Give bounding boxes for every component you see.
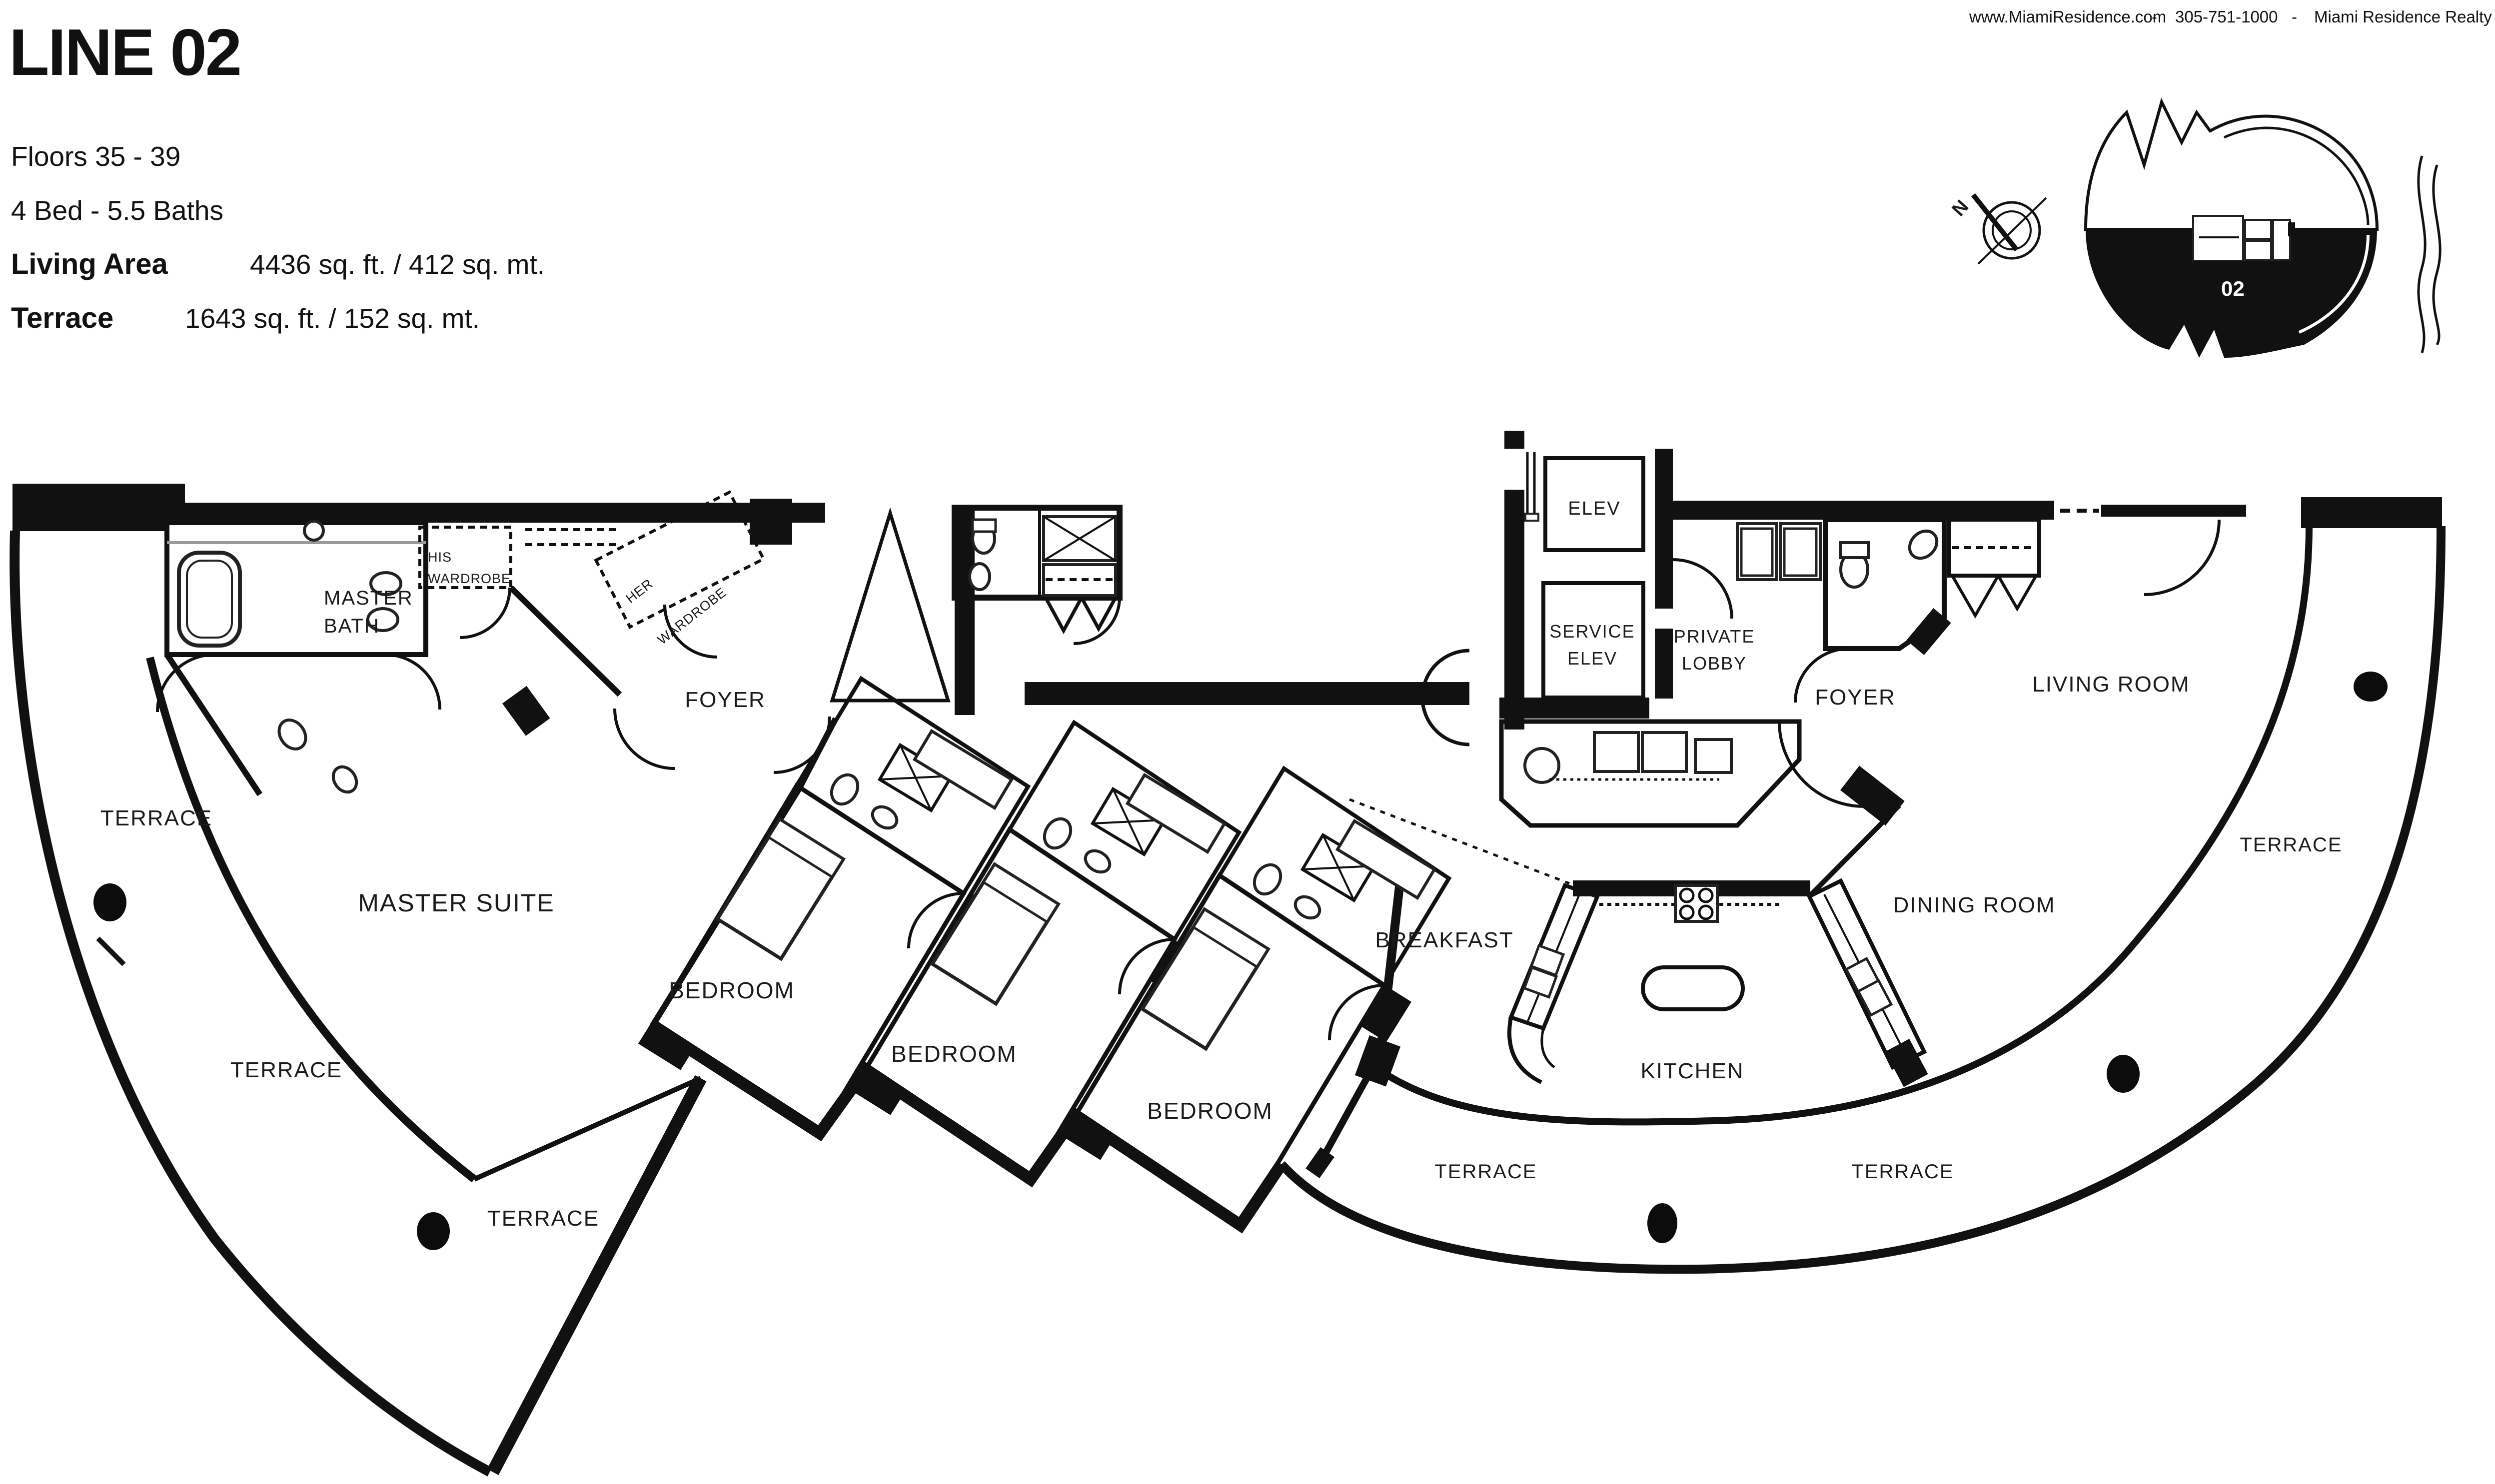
stove-icon <box>1675 885 1717 921</box>
website-link: www.MiamiResidence.com <box>1969 7 2166 26</box>
compass-icon: N <box>1948 195 2046 264</box>
living-area-label: Living Area <box>11 248 168 280</box>
structural-triangle <box>832 513 948 701</box>
label-private-lobby-1: PRIVATE <box>1674 626 1755 647</box>
header-block: LINE 02 Floors 35 - 39 4 Bed - 5.5 Baths… <box>9 15 545 334</box>
phone-number: 305-751-1000 <box>2175 7 2278 26</box>
label-bedroom-1: BEDROOM <box>669 977 795 1003</box>
shower-icon <box>1044 517 1116 561</box>
sink-icon <box>970 564 990 590</box>
label-foyer-left: FOYER <box>685 688 766 712</box>
terrace-area-label: Terrace <box>11 302 113 334</box>
label-terrace-bottom-left: TERRACE <box>1434 1161 1537 1183</box>
floorplan-sheet: www.MiamiResidence.com - 305-751-1000 - … <box>0 0 2495 1484</box>
label-kitchen: KITCHEN <box>1640 1059 1744 1083</box>
water-waves-icon <box>2419 156 2440 353</box>
beds-baths-line: 4 Bed - 5.5 Baths <box>11 195 223 226</box>
label-master-suite: MASTER SUITE <box>358 889 554 917</box>
label-terrace-right: TERRACE <box>2240 834 2342 856</box>
living-area-value: 4436 sq. ft. / 412 sq. mt. <box>250 249 545 280</box>
sink-icon <box>1904 526 1942 564</box>
label-master-bath-1: MASTER <box>324 587 413 609</box>
butler-pantry <box>1501 722 1799 825</box>
compass-north-label: N <box>1948 195 1974 220</box>
keyplan-unit-footprint <box>2193 216 2295 262</box>
sink-icon <box>304 521 323 540</box>
label-bedroom-2: BEDROOM <box>891 1041 1017 1067</box>
terrace-area-value: 1643 sq. ft. / 152 sq. mt. <box>185 303 480 334</box>
label-bedroom-3: BEDROOM <box>1147 1098 1273 1124</box>
floor-plan: MASTER BATH HIS WARDROBE HER WARDROBE FO… <box>12 431 2442 1472</box>
label-terrace-mid-left: TERRACE <box>230 1058 342 1082</box>
label-master-bath-2: BATH <box>324 615 380 637</box>
top-bar: www.MiamiResidence.com - 305-751-1000 - … <box>1969 7 2492 26</box>
page-title: LINE 02 <box>9 15 240 89</box>
kitchen-island <box>1643 967 1743 1009</box>
label-private-lobby-2: LOBBY <box>1682 653 1747 674</box>
label-dining-room: DINING ROOM <box>1893 893 2055 917</box>
floors-line: Floors 35 - 39 <box>11 141 180 172</box>
company-name: Miami Residence Realty <box>2314 7 2492 26</box>
key-plan: N 02 <box>1948 102 2440 358</box>
sink-icon <box>328 762 361 796</box>
kitchen-fixtures <box>1509 881 1924 1082</box>
label-her-wardrobe-1: HER <box>623 576 656 607</box>
label-foyer-right: FOYER <box>1815 685 1896 710</box>
label-terrace-upper-left: TERRACE <box>100 806 212 830</box>
keyplan-unit-number: 02 <box>2221 277 2245 300</box>
service-rooms <box>1737 520 2219 806</box>
label-living-room: LIVING ROOM <box>2032 672 2190 697</box>
topbar-dash-2: - <box>2292 7 2297 26</box>
label-service-elev-2: ELEV <box>1567 648 1617 669</box>
label-his-wardrobe-1: HIS <box>428 550 452 565</box>
pantry-sink-icon <box>1525 748 1559 782</box>
label-terrace-bottom-right: TERRACE <box>1851 1161 1954 1183</box>
label-his-wardrobe-2: WARDROBE <box>428 571 511 586</box>
topbar-dash-1: - <box>2152 7 2157 26</box>
label-elev: ELEV <box>1568 498 1620 519</box>
toilet-icon <box>274 715 311 754</box>
building-outline-icon: 02 <box>2086 102 2377 358</box>
label-service-elev-1: SERVICE <box>1549 621 1635 642</box>
master-bath-room <box>167 521 426 796</box>
label-breakfast: BREAKFAST <box>1375 928 1513 952</box>
label-terrace-lower-left: TERRACE <box>487 1206 599 1231</box>
